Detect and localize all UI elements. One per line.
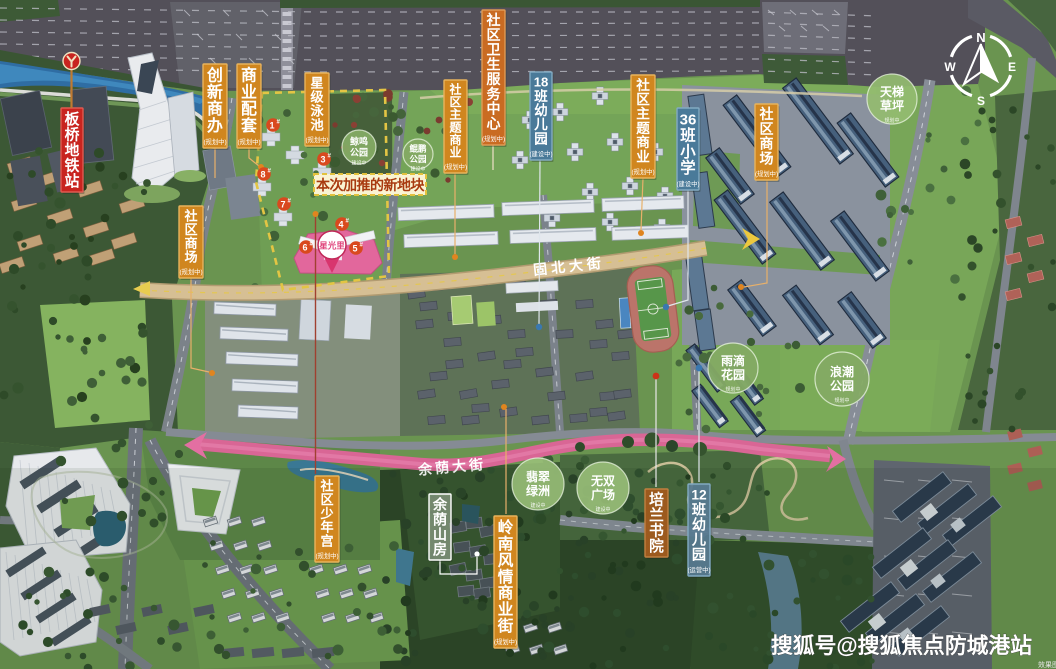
svg-text:(规划中): (规划中): [444, 162, 467, 171]
svg-text:桥: 桥: [65, 125, 80, 143]
svg-text:中: 中: [487, 101, 501, 117]
svg-text:业: 业: [449, 145, 461, 160]
svg-text:大: 大: [568, 257, 584, 274]
svg-text:幼: 幼: [692, 516, 706, 533]
svg-text:主: 主: [636, 105, 650, 121]
svg-text:题: 题: [636, 121, 650, 136]
svg-text:站: 站: [65, 172, 80, 190]
svg-text:儿: 儿: [691, 532, 706, 548]
svg-text:18: 18: [534, 75, 549, 90]
svg-text:街: 街: [497, 616, 514, 635]
svg-text:(规划中): (规划中): [305, 135, 328, 144]
svg-text:搜狐号@搜狐焦点防城港站: 搜狐号@搜狐焦点防城港站: [771, 633, 1032, 658]
svg-text:区: 区: [184, 222, 197, 237]
svg-text:书: 书: [649, 522, 664, 540]
svg-text:N: N: [976, 30, 985, 45]
svg-text:池: 池: [310, 117, 324, 133]
svg-text:8: 8: [260, 170, 265, 180]
svg-text:铁: 铁: [65, 157, 80, 175]
svg-text:社: 社: [319, 477, 333, 493]
svg-text:业: 业: [636, 149, 650, 164]
svg-text:套: 套: [241, 116, 257, 135]
svg-text:无双: 无双: [590, 474, 615, 488]
svg-text:新: 新: [207, 83, 223, 102]
svg-text:区: 区: [320, 492, 333, 507]
svg-text:(规划中): (规划中): [755, 169, 778, 178]
svg-text:(规划中): (规划中): [315, 551, 338, 560]
svg-text:建设中: 建设中: [530, 502, 545, 509]
svg-text:翡翠: 翡翠: [526, 469, 550, 484]
svg-text:社: 社: [486, 12, 501, 28]
svg-text:儿: 儿: [533, 117, 548, 132]
svg-text:班: 班: [692, 501, 706, 518]
svg-text:培: 培: [649, 491, 664, 509]
svg-text:(规划中): (规划中): [179, 267, 202, 276]
svg-text:(建设中): (建设中): [676, 179, 699, 188]
svg-text:少: 少: [319, 506, 333, 521]
svg-text:天梯: 天梯: [880, 84, 904, 99]
svg-text:园: 园: [534, 131, 548, 146]
svg-text:(规划中): (规划中): [494, 637, 517, 646]
svg-text:房: 房: [433, 541, 447, 558]
svg-text:鲸鸣: 鲸鸣: [349, 136, 368, 147]
svg-text:36: 36: [680, 111, 697, 128]
svg-text:场: 场: [184, 250, 197, 265]
svg-text:商: 商: [636, 134, 650, 150]
svg-text:E: E: [1008, 60, 1016, 74]
svg-text:心: 心: [487, 115, 501, 131]
svg-text:规划中: 规划中: [884, 117, 899, 124]
svg-text:商: 商: [184, 235, 197, 251]
svg-text:草坪: 草坪: [880, 98, 904, 113]
svg-text:(规划中): (规划中): [237, 137, 260, 146]
svg-text:(建设中): (建设中): [529, 149, 552, 158]
svg-text:业: 业: [498, 601, 514, 619]
svg-text:社: 社: [635, 77, 650, 93]
svg-text:级: 级: [310, 89, 324, 105]
svg-text:建设中: 建设中: [410, 166, 425, 173]
svg-text:(规划中): (规划中): [203, 137, 226, 146]
svg-text:6: 6: [302, 243, 307, 253]
svg-text:浪潮: 浪潮: [830, 364, 854, 379]
svg-text:年: 年: [320, 519, 333, 535]
svg-text:S: S: [977, 94, 985, 108]
svg-text:班: 班: [534, 88, 548, 104]
svg-text:南: 南: [498, 534, 514, 553]
svg-text:区: 区: [760, 121, 774, 137]
svg-text:鲲鹏: 鲲鹏: [409, 144, 427, 154]
svg-text:山: 山: [433, 527, 447, 543]
svg-text:星: 星: [310, 76, 323, 91]
svg-text:荫: 荫: [433, 511, 447, 528]
svg-text:生: 生: [487, 56, 501, 72]
svg-text:规划中: 规划中: [725, 386, 740, 393]
svg-text:星光里: 星光里: [319, 241, 345, 251]
svg-text:雨滴: 雨滴: [721, 353, 745, 368]
svg-text:固: 固: [532, 260, 548, 277]
svg-text:北: 北: [550, 259, 566, 276]
svg-text:街: 街: [585, 255, 602, 272]
svg-text:广场: 广场: [591, 487, 615, 502]
svg-text:建设中: 建设中: [351, 160, 366, 167]
svg-text:公园: 公园: [409, 154, 426, 164]
svg-text:务: 务: [487, 86, 502, 102]
svg-text:本次加推的新地块: 本次加推的新地块: [316, 177, 425, 193]
svg-text:3: 3: [320, 155, 325, 165]
svg-text:风: 风: [498, 551, 514, 569]
svg-text:情: 情: [498, 567, 514, 586]
svg-text:5: 5: [352, 244, 357, 254]
svg-text:兰: 兰: [649, 506, 664, 524]
svg-text:社: 社: [183, 207, 197, 223]
svg-text:规划中: 规划中: [834, 397, 849, 404]
svg-text:绿洲: 绿洲: [526, 483, 550, 498]
svg-text:班: 班: [680, 126, 696, 145]
svg-text:4: 4: [338, 220, 343, 230]
svg-text:社: 社: [759, 106, 774, 122]
svg-text:业: 业: [241, 84, 257, 102]
svg-text:院: 院: [649, 537, 664, 555]
svg-text:商: 商: [207, 99, 223, 118]
svg-text:(规划中): (规划中): [631, 167, 654, 176]
svg-text:服: 服: [487, 71, 502, 87]
svg-text:幼: 幼: [534, 102, 548, 118]
svg-text:(运营中): (运营中): [687, 565, 710, 574]
svg-text:卫: 卫: [487, 42, 501, 58]
svg-text:W: W: [944, 60, 956, 74]
svg-text:12: 12: [691, 487, 707, 502]
svg-text:学: 学: [680, 158, 695, 177]
svg-text:商: 商: [498, 583, 514, 602]
svg-text:区: 区: [487, 27, 501, 43]
svg-text:商: 商: [241, 66, 257, 85]
svg-text:板: 板: [65, 110, 80, 128]
svg-text:公园: 公园: [350, 148, 368, 158]
svg-text:地: 地: [65, 141, 80, 159]
svg-text:余: 余: [432, 496, 448, 513]
svg-text:泳: 泳: [310, 103, 324, 119]
svg-text:场: 场: [760, 150, 774, 166]
svg-text:区: 区: [636, 92, 650, 107]
svg-text:岭: 岭: [498, 518, 514, 537]
svg-text:办: 办: [207, 116, 223, 135]
svg-text:建设中: 建设中: [595, 506, 610, 513]
svg-text:7: 7: [280, 200, 285, 210]
svg-text:配: 配: [241, 100, 257, 118]
svg-text:花园: 花园: [721, 367, 745, 382]
svg-text:1: 1: [269, 121, 274, 131]
svg-text:商: 商: [760, 136, 774, 152]
svg-text:公园: 公园: [830, 379, 854, 393]
svg-text:创: 创: [206, 66, 223, 85]
svg-text:宫: 宫: [320, 533, 333, 549]
svg-text:小: 小: [680, 143, 696, 161]
svg-text:(规划中): (规划中): [482, 134, 505, 143]
svg-text:园: 园: [692, 547, 706, 563]
svg-text:效果图: 效果图: [1038, 660, 1056, 669]
